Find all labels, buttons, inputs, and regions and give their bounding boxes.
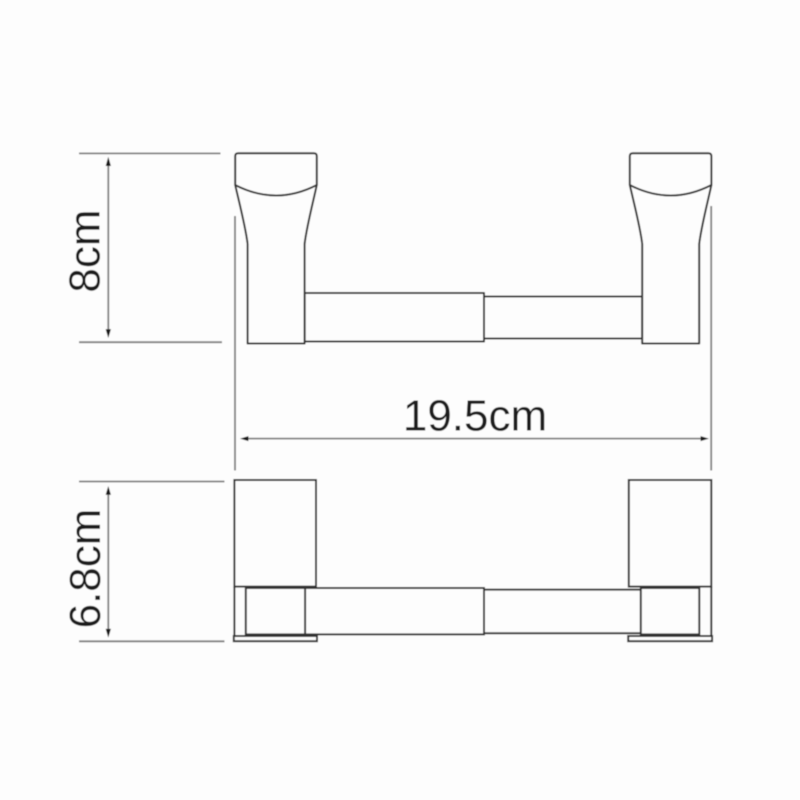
svg-text:8cm: 8cm	[61, 209, 110, 292]
svg-text:19.5cm: 19.5cm	[403, 392, 547, 441]
svg-text:6.8cm: 6.8cm	[61, 509, 110, 629]
